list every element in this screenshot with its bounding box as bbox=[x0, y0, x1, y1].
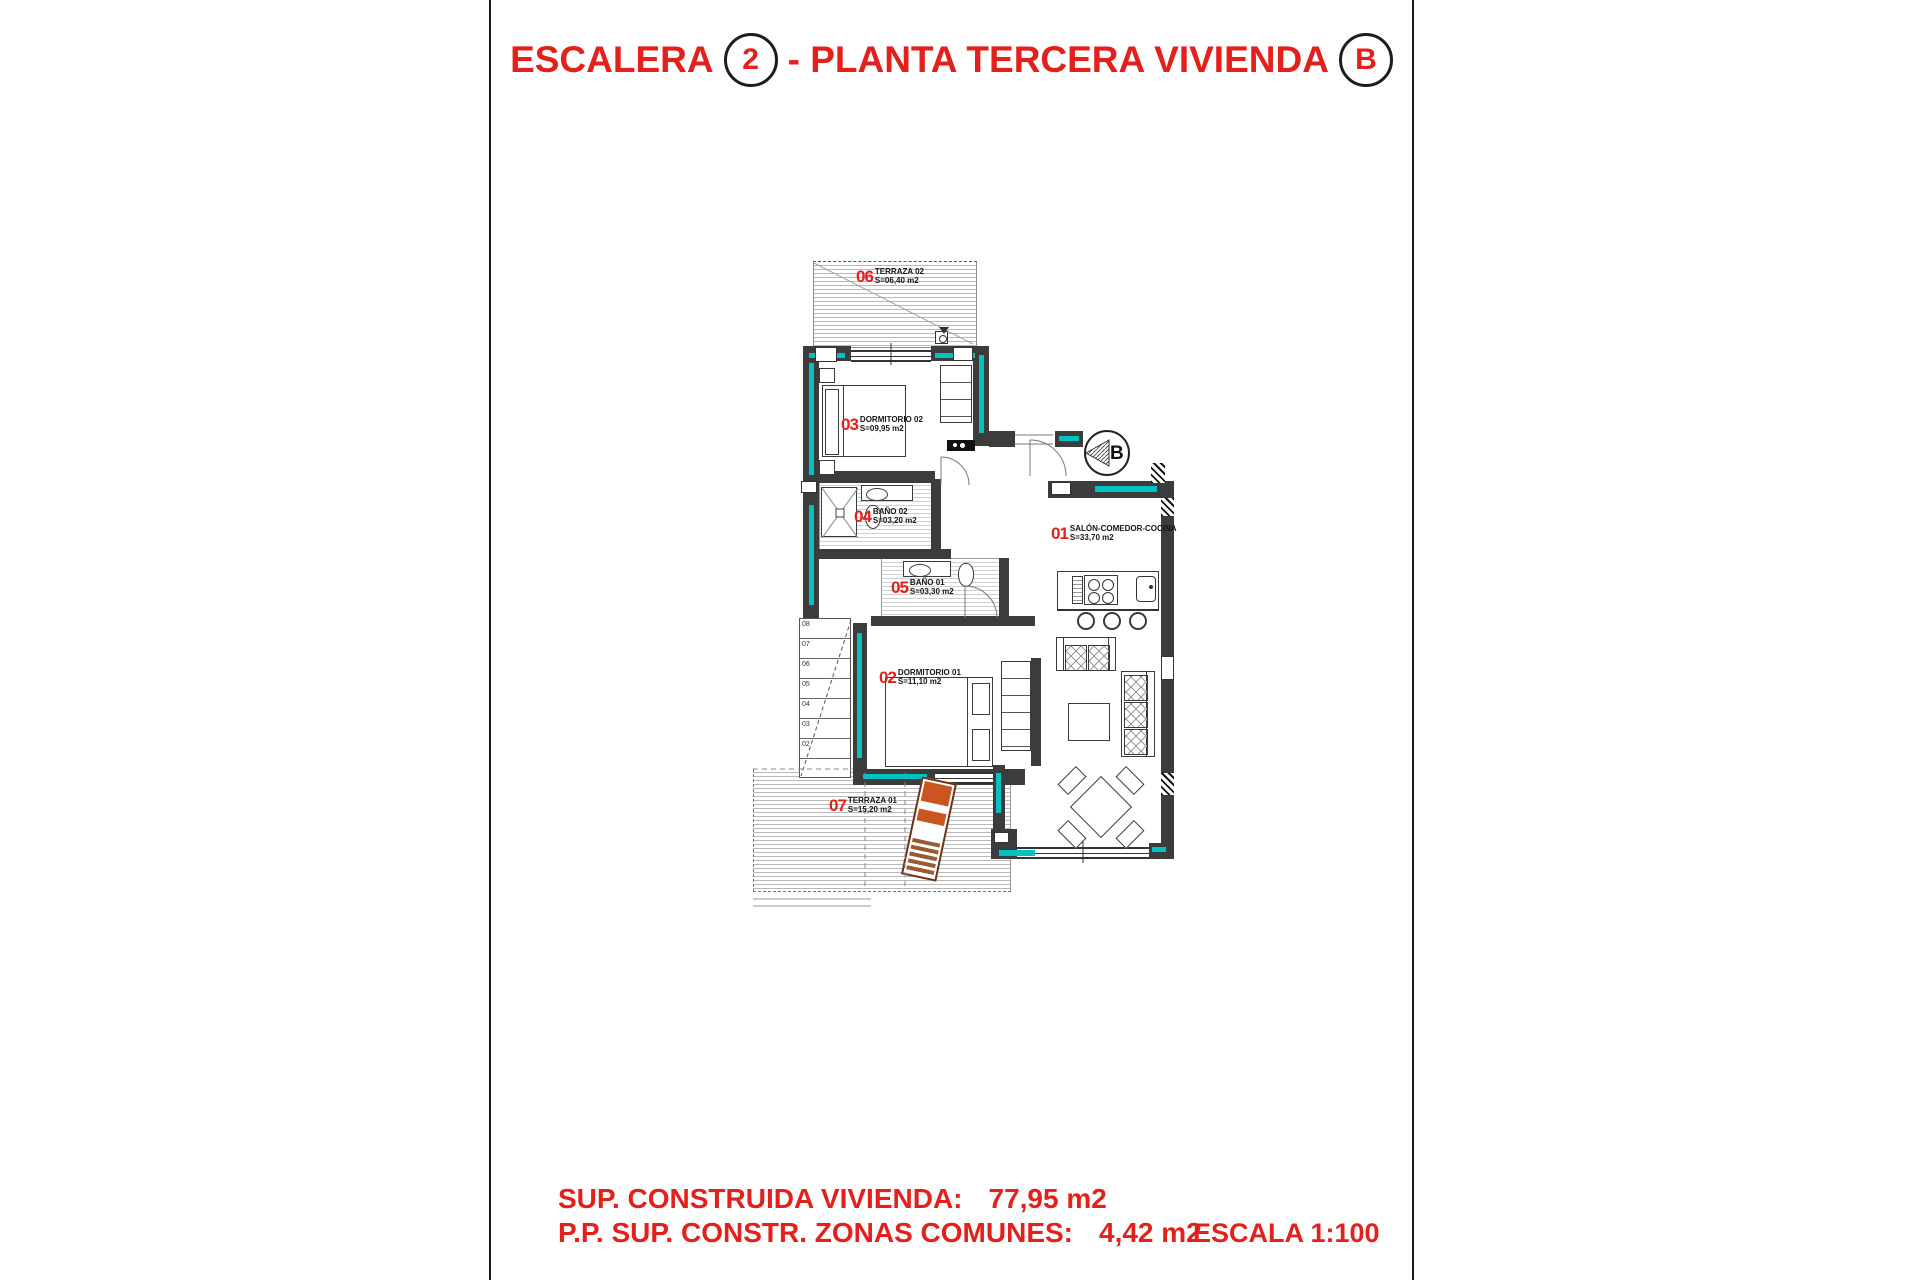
sheet-border-right bbox=[1412, 0, 1414, 1280]
room-area: S=33,70 m2 bbox=[1070, 534, 1177, 542]
unit-letter-badge: B bbox=[1339, 33, 1393, 87]
summary-line-2: P.P. SUP. CONSTR. ZONAS COMUNES:4,42 m2 bbox=[558, 1217, 1202, 1249]
room-number: 06 bbox=[856, 268, 873, 285]
summary-line-1-label: SUP. CONSTRUIDA VIVIENDA: bbox=[558, 1183, 963, 1214]
title-prefix: ESCALERA bbox=[510, 39, 714, 81]
entrance-marker-letter: B bbox=[1110, 443, 1124, 465]
page-title: ESCALERA 2 - PLANTA TERCERA VIVIENDA B bbox=[490, 30, 1413, 90]
floor-plan-sheet: { "header": { "title_prefix": "ESCALERA"… bbox=[0, 0, 1920, 1280]
room-number: 03 bbox=[841, 416, 858, 433]
room-name: SALÓN-COMEDOR-COCINA bbox=[1070, 525, 1177, 533]
room-name: TERRAZA 01 bbox=[848, 797, 897, 805]
room-area: S=09,95 m2 bbox=[860, 425, 923, 433]
room-area: S=15,20 m2 bbox=[848, 806, 897, 814]
room-area: S=03,30 m2 bbox=[910, 588, 954, 596]
room-name: BAÑO 01 bbox=[910, 579, 954, 587]
floor-plan: 08 07 06 05 04 03 02 bbox=[753, 213, 1215, 913]
room-label-bano-02: 04 BAÑO 02S=03,20 m2 bbox=[854, 508, 917, 525]
title-middle: - PLANTA TERCERA VIVIENDA bbox=[788, 39, 1329, 81]
room-area: S=11,10 m2 bbox=[898, 678, 961, 686]
sheet-border-left bbox=[489, 0, 491, 1280]
summary-line-1: SUP. CONSTRUIDA VIVIENDA:77,95 m2 bbox=[558, 1183, 1107, 1215]
room-number: 07 bbox=[829, 797, 846, 814]
plan-linework bbox=[753, 213, 1215, 913]
room-number: 01 bbox=[1051, 525, 1068, 542]
room-label-bano-01: 05 BAÑO 01S=03,30 m2 bbox=[891, 579, 954, 596]
summary-line-2-value: 4,42 m2 bbox=[1099, 1217, 1202, 1248]
room-number: 02 bbox=[879, 669, 896, 686]
stair-number-badge: 2 bbox=[724, 33, 778, 87]
room-label-dormitorio-02: 03 DORMITORIO 02S=09,95 m2 bbox=[841, 416, 923, 433]
room-label-dormitorio-01: 02 DORMITORIO 01S=11,10 m2 bbox=[879, 669, 961, 686]
room-name: TERRAZA 02 bbox=[875, 268, 924, 276]
room-label-salon: 01 SALÓN-COMEDOR-COCINAS=33,70 m2 bbox=[1051, 525, 1177, 542]
scale-label: ESCALA 1:100 bbox=[1193, 1218, 1380, 1249]
room-area: S=03,20 m2 bbox=[873, 517, 917, 525]
room-name: DORMITORIO 02 bbox=[860, 416, 923, 424]
summary-line-2-label: P.P. SUP. CONSTR. ZONAS COMUNES: bbox=[558, 1217, 1073, 1248]
room-name: BAÑO 02 bbox=[873, 508, 917, 516]
summary-line-1-value: 77,95 m2 bbox=[989, 1183, 1107, 1214]
room-label-terraza-01: 07 TERRAZA 01S=15,20 m2 bbox=[829, 797, 897, 814]
room-number: 05 bbox=[891, 579, 908, 596]
room-label-terraza-02: 06 TERRAZA 02S=06,40 m2 bbox=[856, 268, 924, 285]
room-name: DORMITORIO 01 bbox=[898, 669, 961, 677]
room-number: 04 bbox=[854, 508, 871, 525]
room-area: S=06,40 m2 bbox=[875, 277, 924, 285]
